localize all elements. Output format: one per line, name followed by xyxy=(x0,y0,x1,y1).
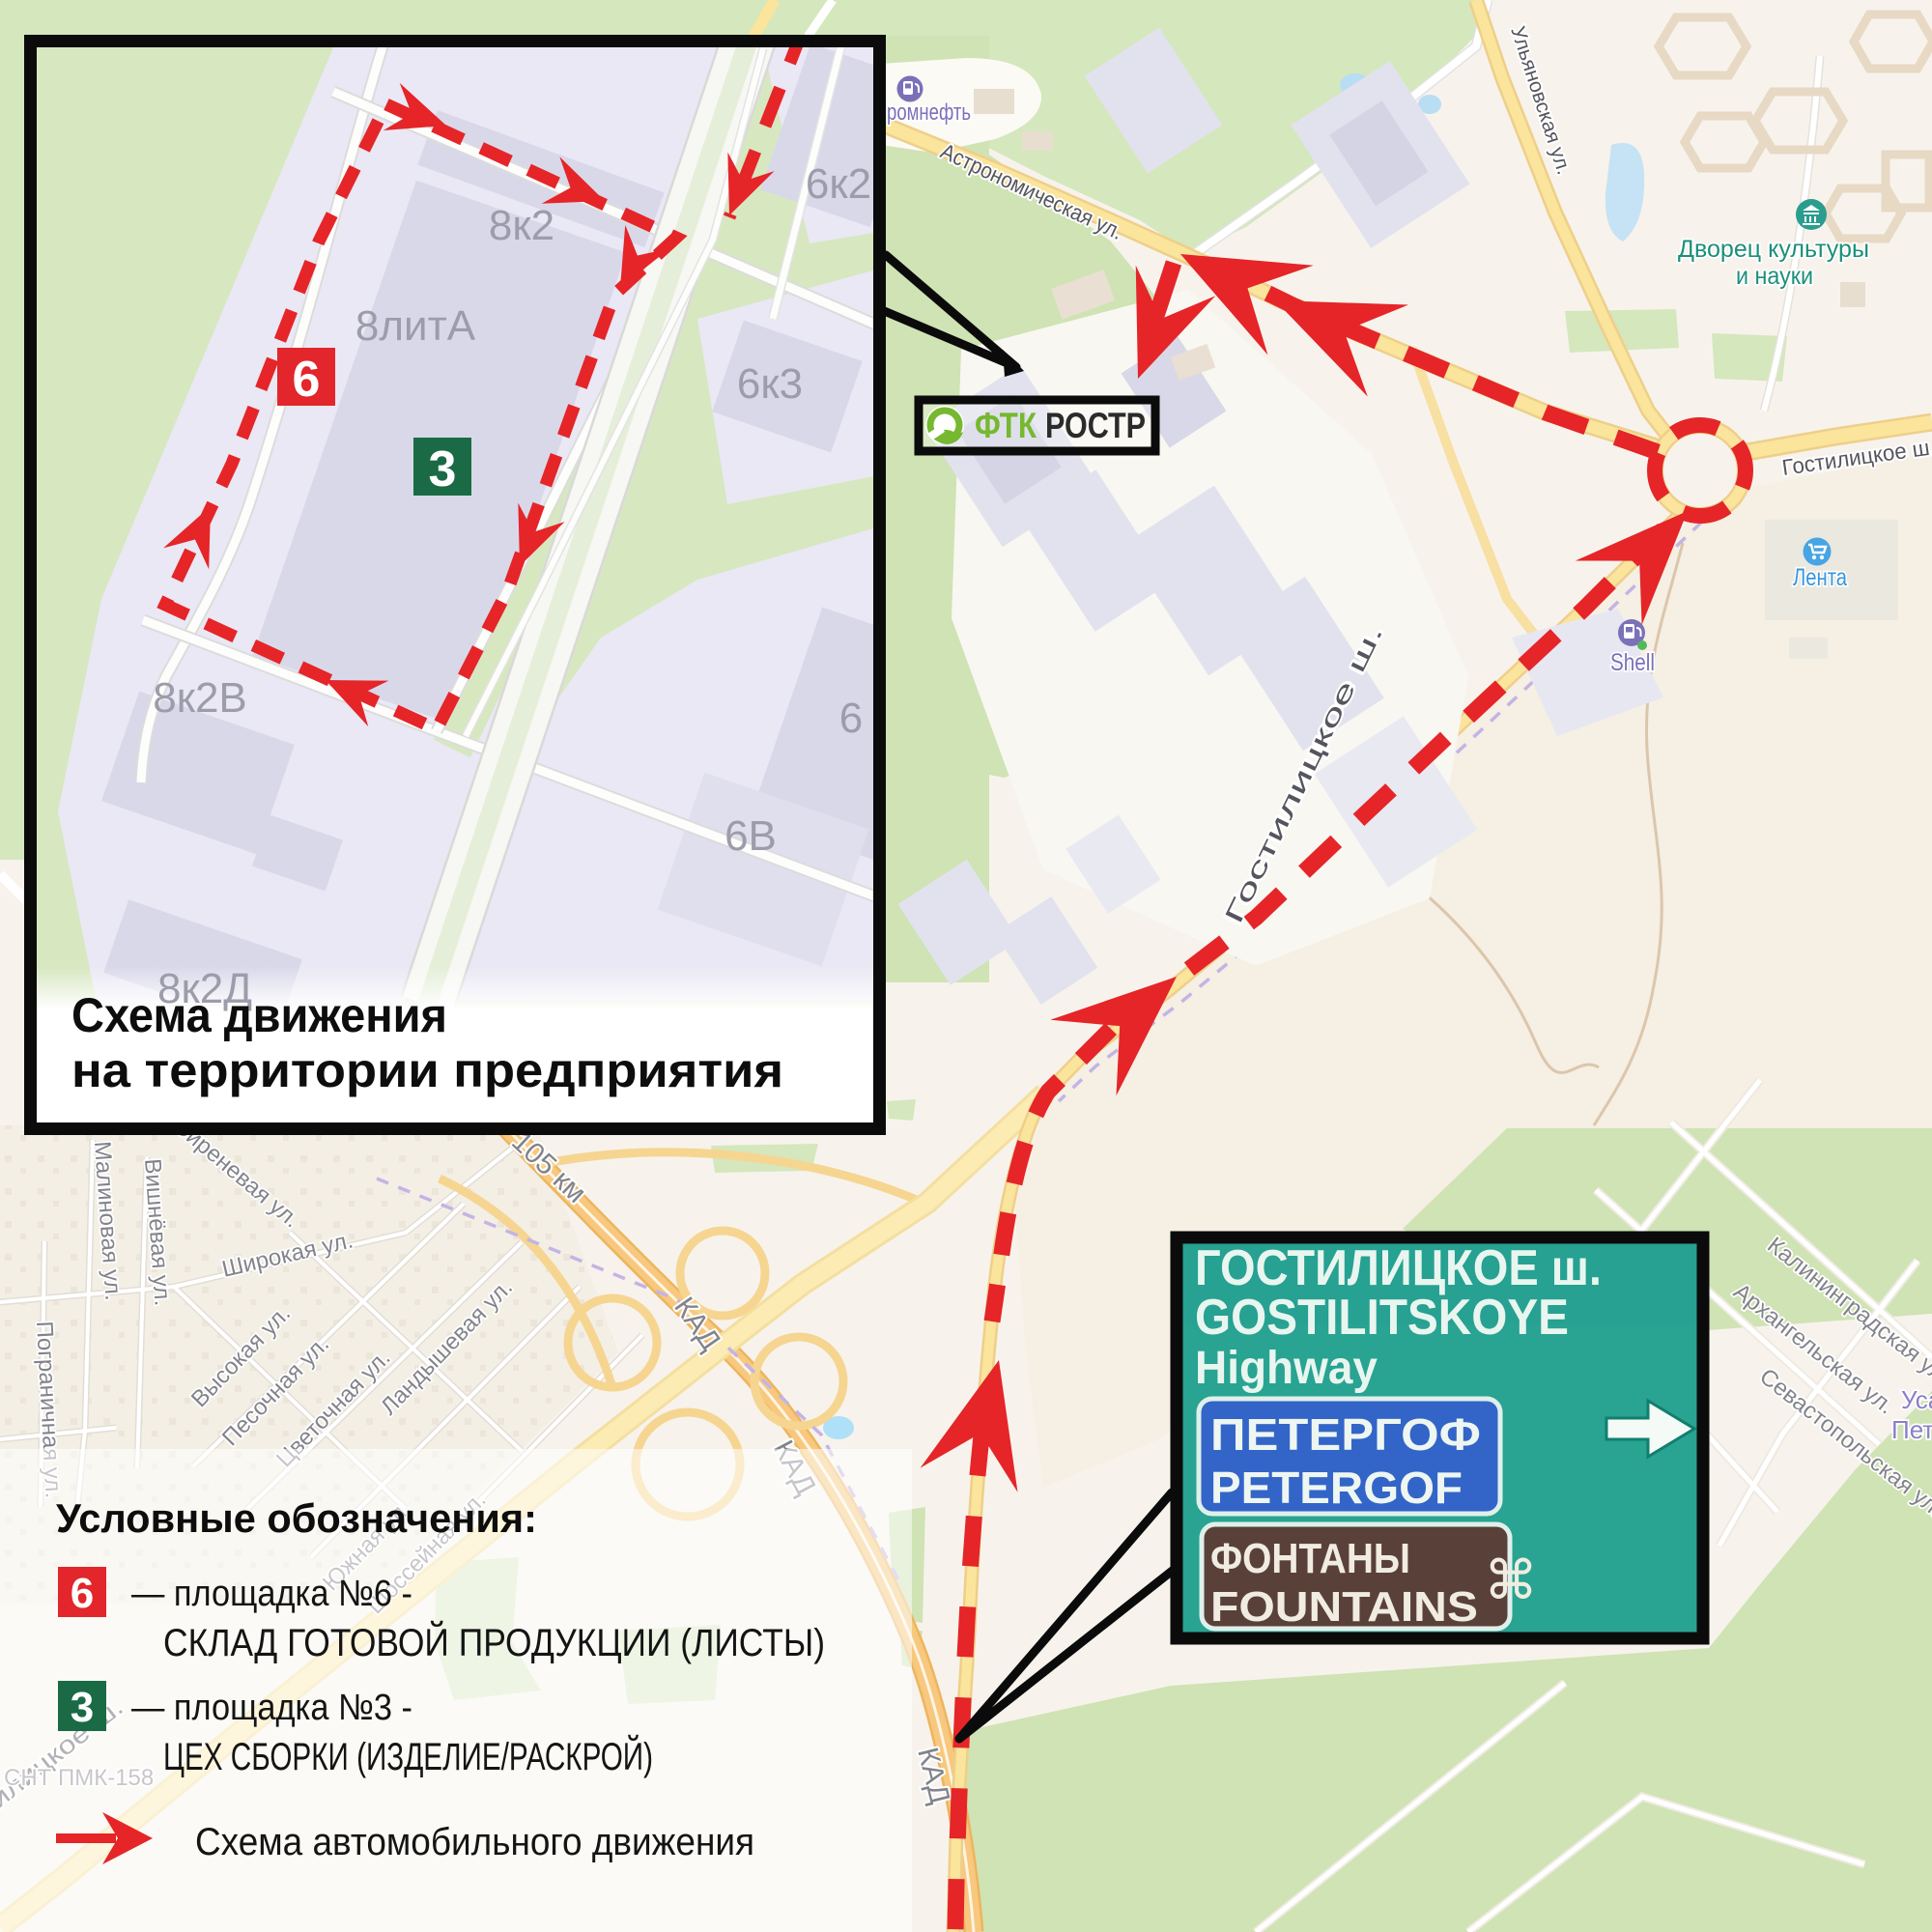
svg-text:— площадка №6 -: — площадка №6 - xyxy=(131,1574,412,1614)
svg-text:3: 3 xyxy=(429,441,457,497)
svg-text:8к2В: 8к2В xyxy=(153,674,247,722)
svg-text:ФОНТАНЫ: ФОНТАНЫ xyxy=(1210,1535,1410,1582)
svg-text:8к2: 8к2 xyxy=(489,202,554,249)
svg-text:6: 6 xyxy=(71,1570,94,1617)
svg-text:Усад: Усад xyxy=(1901,1385,1932,1414)
svg-text:8литА: 8литА xyxy=(355,302,476,350)
svg-text:Схема автомобильного движения: Схема автомобильного движения xyxy=(195,1821,754,1863)
svg-text:PETERGOF: PETERGOF xyxy=(1210,1463,1463,1513)
svg-text:6к2: 6к2 xyxy=(806,160,871,208)
svg-text:ПЕТЕРГОФ: ПЕТЕРГОФ xyxy=(1210,1409,1481,1460)
svg-text:ГОСТИЛИЦКОЕ ш.: ГОСТИЛИЦКОЕ ш. xyxy=(1195,1240,1602,1296)
svg-text:РОСТР: РОСТР xyxy=(1045,406,1146,445)
svg-text:Дворец культуры: Дворец культуры xyxy=(1678,236,1869,263)
svg-text:и науки: и науки xyxy=(1736,263,1813,290)
svg-text:ЦЕХ СБОРКИ (ИЗДЕЛИЕ/РАСКРОЙ): ЦЕХ СБОРКИ (ИЗДЕЛИЕ/РАСКРОЙ) xyxy=(163,1734,653,1778)
svg-text:Условные обозначения:: Условные обозначения: xyxy=(56,1495,537,1541)
svg-text:6: 6 xyxy=(839,695,863,742)
svg-text:FOUNTAINS: FOUNTAINS xyxy=(1210,1583,1478,1631)
svg-text:ФТК: ФТК xyxy=(975,406,1037,445)
svg-text:6к3: 6к3 xyxy=(737,360,803,408)
svg-text:— площадка №3 -: — площадка №3 - xyxy=(131,1688,412,1728)
svg-text:СКЛАД ГОТОВОЙ ПРОДУКЦИИ (ЛИСТЫ: СКЛАД ГОТОВОЙ ПРОДУКЦИИ (ЛИСТЫ) xyxy=(163,1620,825,1664)
svg-text:3: 3 xyxy=(71,1684,94,1731)
svg-text:Лента: Лента xyxy=(1793,564,1847,591)
svg-text:⌘: ⌘ xyxy=(1484,1549,1538,1610)
svg-text:на территории предприятия: на территории предприятия xyxy=(71,1043,783,1097)
svg-text:Схема движения: Схема движения xyxy=(71,988,447,1042)
svg-text:Highway: Highway xyxy=(1195,1343,1378,1394)
svg-text:Shell: Shell xyxy=(1610,649,1655,676)
svg-text:GOSTILITSKOYE: GOSTILITSKOYE xyxy=(1195,1290,1569,1346)
svg-text:6: 6 xyxy=(293,352,321,408)
svg-text:6В: 6В xyxy=(724,812,777,860)
svg-text:Пете: Пете xyxy=(1891,1415,1932,1444)
svg-text:промнефть: промнефть xyxy=(877,99,971,126)
